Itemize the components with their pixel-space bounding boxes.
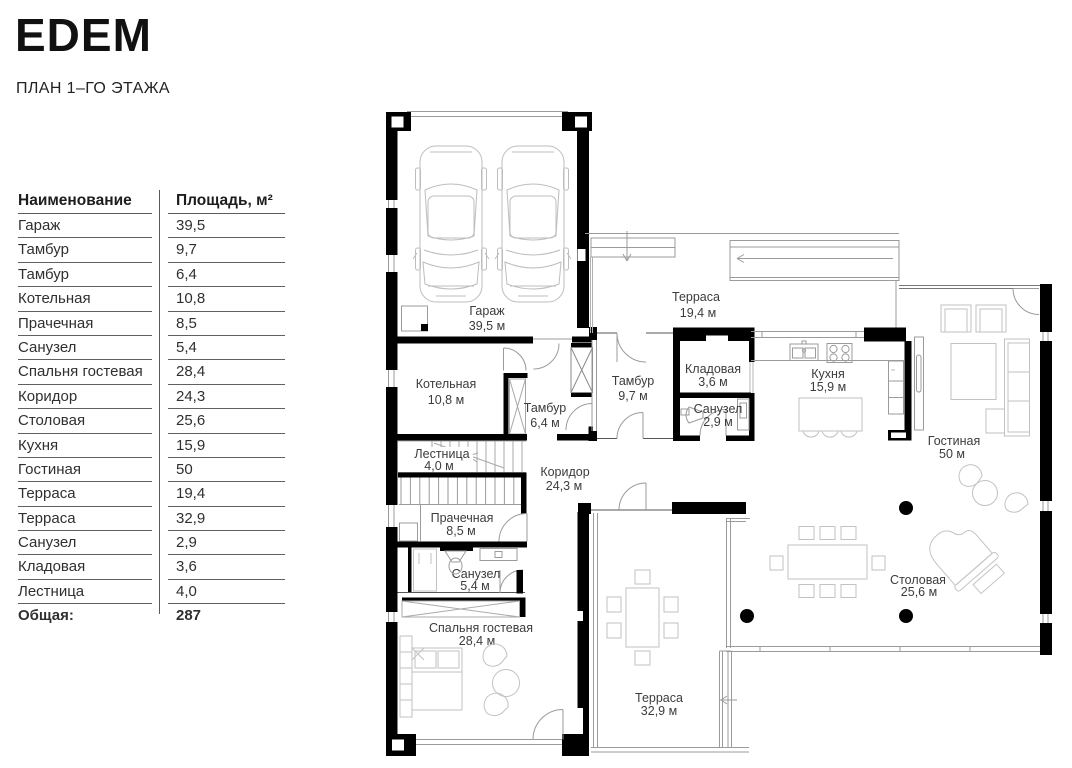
svg-text:Терраса: Терраса <box>672 290 720 304</box>
svg-text:Спальня гостевая: Спальня гостевая <box>429 621 533 635</box>
svg-text:8,5 м: 8,5 м <box>446 524 475 538</box>
svg-text:5,4 м: 5,4 м <box>460 579 489 593</box>
svg-text:10,8 м: 10,8 м <box>428 393 464 407</box>
svg-text:3,6 м: 3,6 м <box>698 375 727 389</box>
svg-text:6,4 м: 6,4 м <box>530 416 559 430</box>
svg-text:15,9 м: 15,9 м <box>810 380 846 394</box>
svg-text:Санузел: Санузел <box>694 402 743 416</box>
svg-text:9,7 м: 9,7 м <box>618 389 647 403</box>
svg-text:Прачечная: Прачечная <box>431 511 494 525</box>
svg-text:Тамбур: Тамбур <box>612 374 654 388</box>
svg-text:Гостиная: Гостиная <box>928 434 980 448</box>
svg-text:24,3 м: 24,3 м <box>546 479 582 493</box>
svg-text:39,5 м: 39,5 м <box>469 319 505 333</box>
svg-text:4,0 м: 4,0 м <box>424 459 453 473</box>
svg-text:Кладовая: Кладовая <box>685 362 741 376</box>
svg-text:50 м: 50 м <box>939 447 965 461</box>
svg-text:Кухня: Кухня <box>811 367 844 381</box>
svg-text:32,9 м: 32,9 м <box>641 704 677 718</box>
svg-text:Тамбур: Тамбур <box>524 401 566 415</box>
svg-text:Котельная: Котельная <box>416 377 477 391</box>
svg-text:28,4 м: 28,4 м <box>459 634 495 648</box>
svg-text:Коридор: Коридор <box>540 465 589 479</box>
svg-text:Терраса: Терраса <box>635 691 683 705</box>
svg-text:25,6 м: 25,6 м <box>901 585 937 599</box>
svg-text:19,4 м: 19,4 м <box>680 306 716 320</box>
svg-text:2,9 м: 2,9 м <box>703 415 732 429</box>
svg-text:Гараж: Гараж <box>469 304 505 318</box>
